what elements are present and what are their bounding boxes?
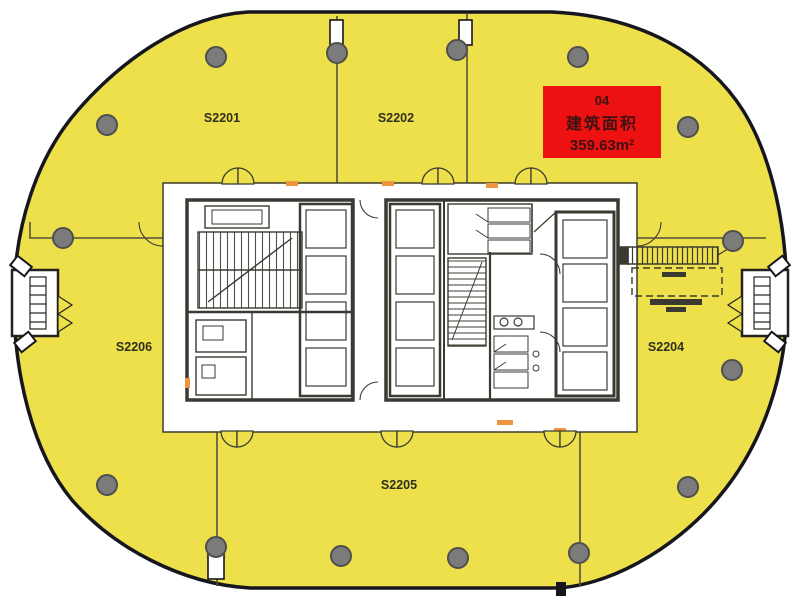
unit-label-s2202[interactable]: S2202 — [378, 111, 414, 125]
floorplan-svg: 04 建筑面积 359.63m² S2201 S2202 S2204 S2205… — [0, 0, 800, 600]
area-highlight-badge: 04 建筑面积 359.63m² — [543, 86, 661, 158]
unit-label-s2201[interactable]: S2201 — [204, 111, 240, 125]
highlight-area-label: 建筑面积 — [566, 114, 638, 133]
building-core — [139, 181, 661, 433]
floorplan-canvas: 04 建筑面积 359.63m² S2201 S2202 S2204 S2205… — [0, 0, 800, 600]
unit-label-s2204[interactable]: S2204 — [648, 340, 684, 354]
unit-label-s2206[interactable]: S2206 — [116, 340, 152, 354]
highlight-unit-no: 04 — [595, 93, 610, 108]
highlight-area-value: 359.63m² — [570, 137, 634, 154]
unit-label-s2205[interactable]: S2205 — [381, 478, 417, 492]
